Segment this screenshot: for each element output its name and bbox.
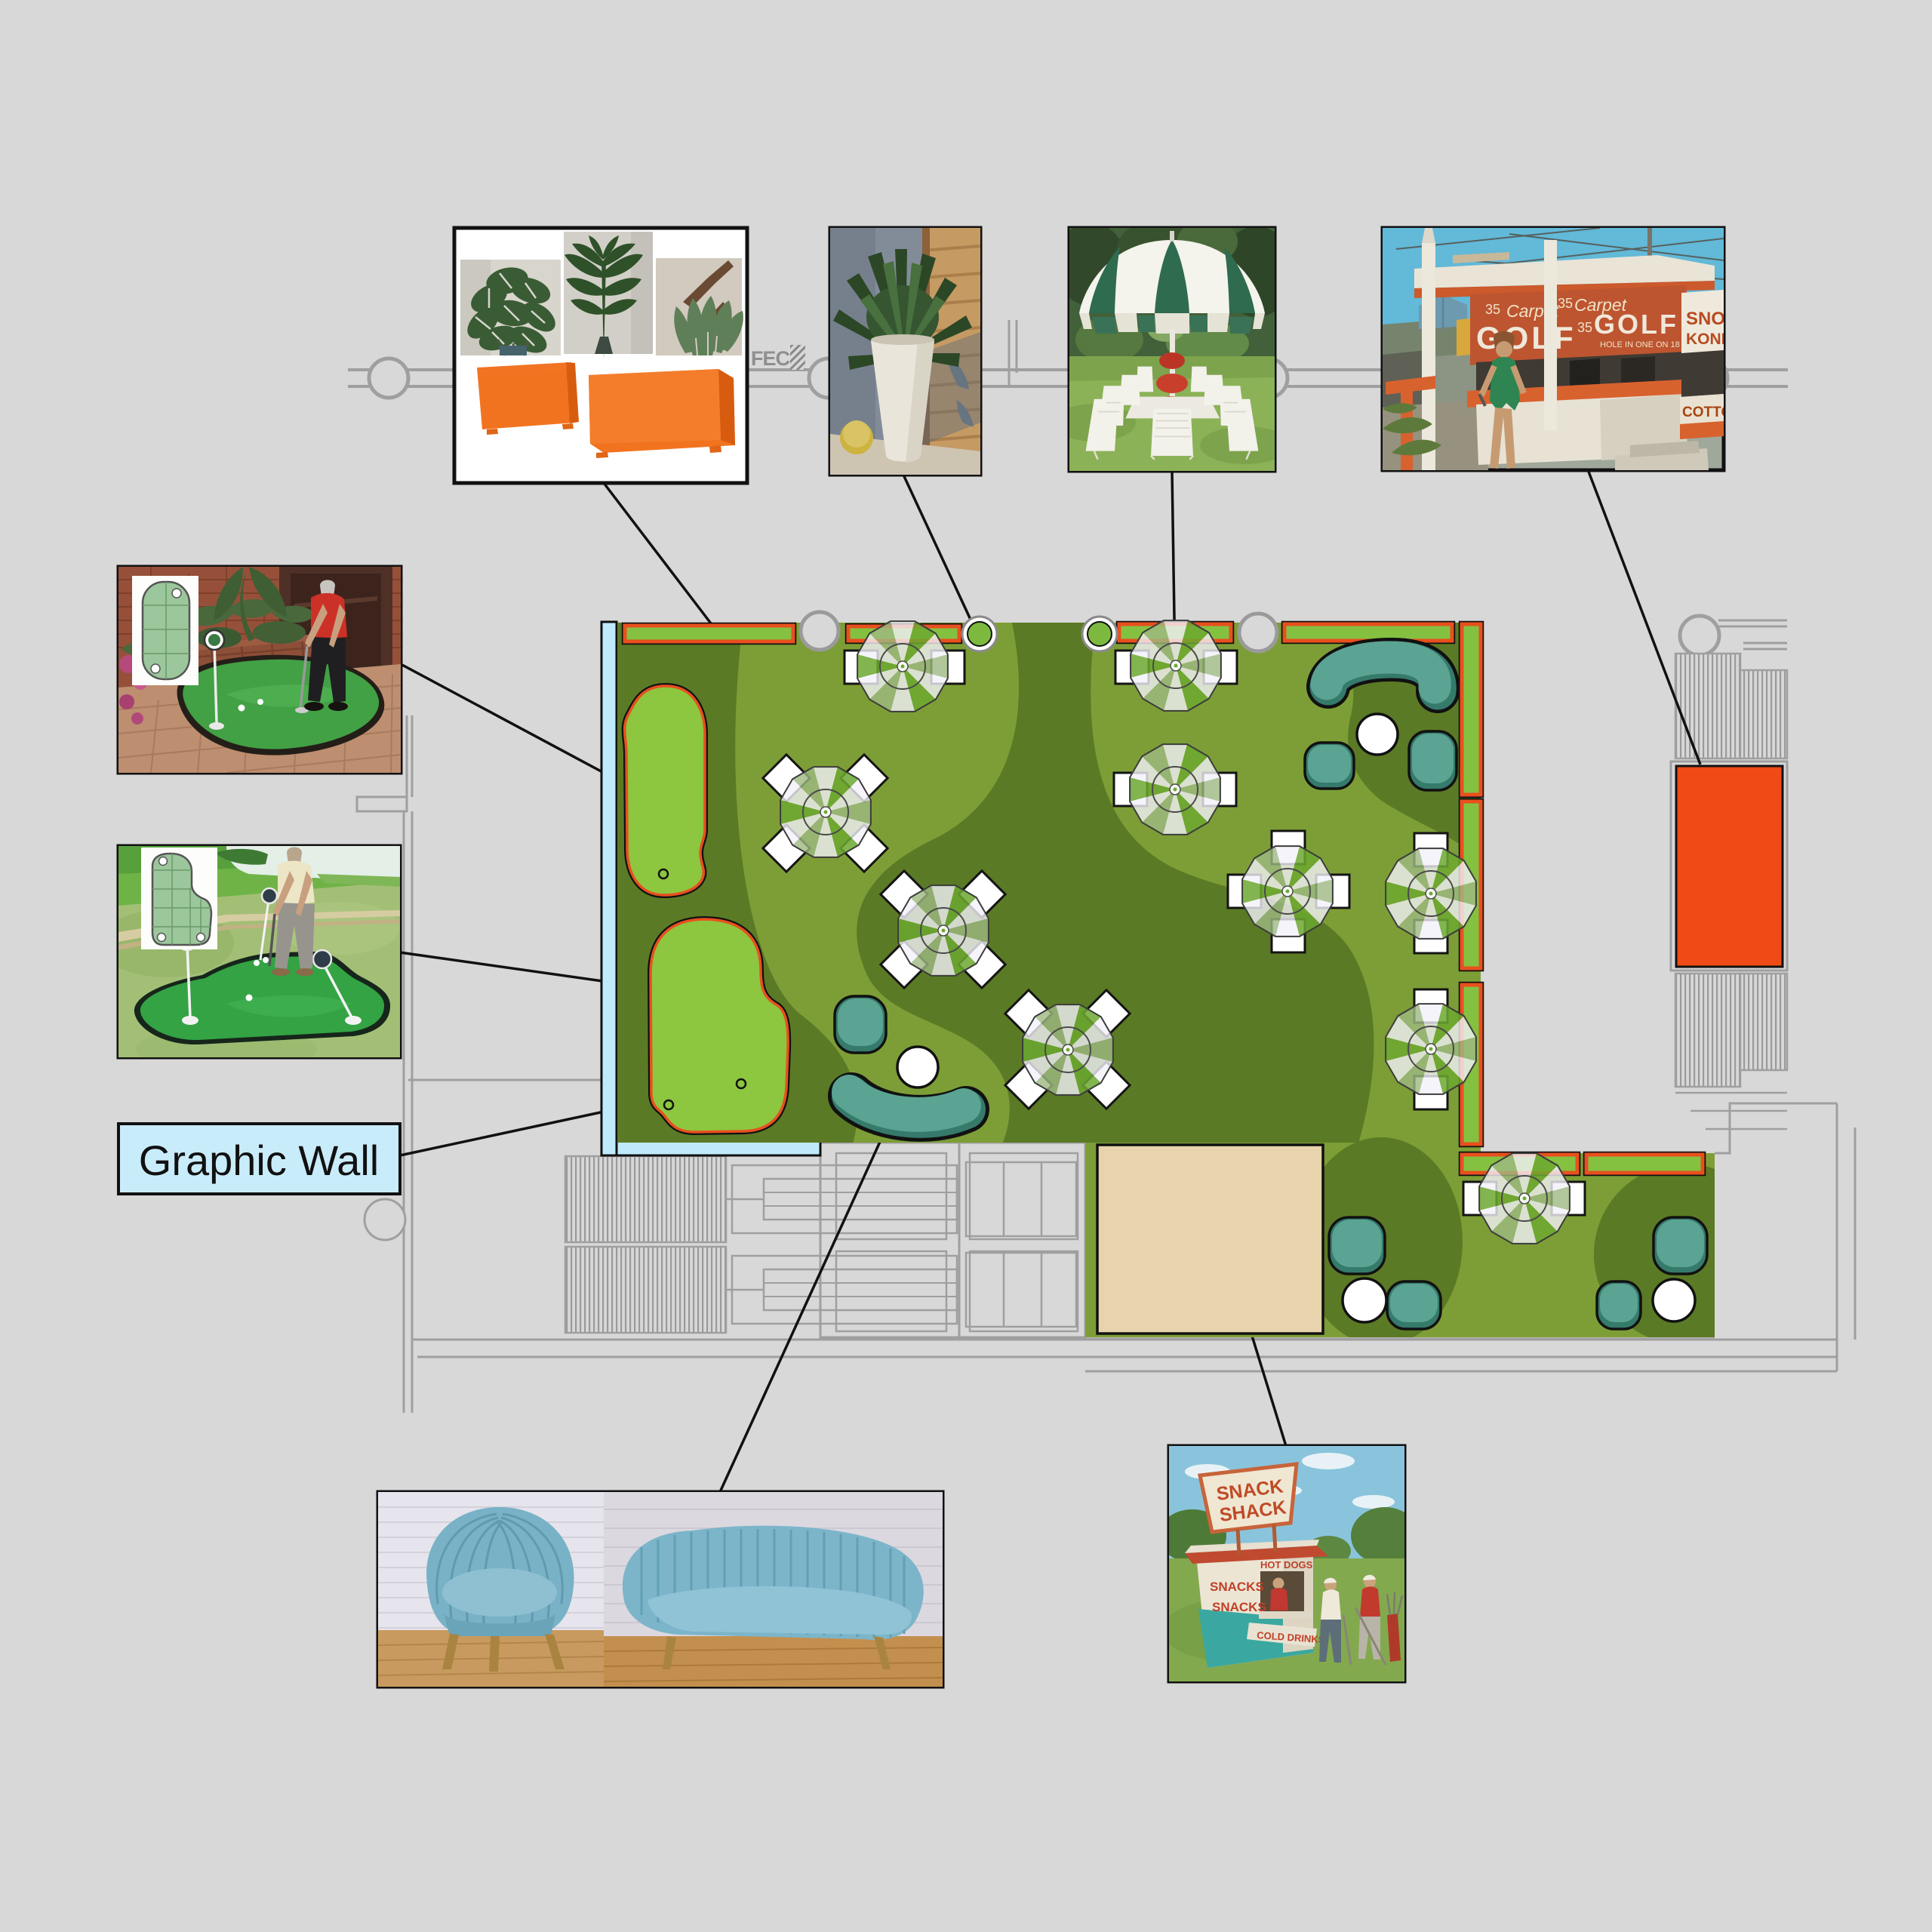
svg-text:GOLF: GOLF bbox=[1476, 320, 1577, 355]
svg-text:35: 35 bbox=[1558, 296, 1573, 311]
svg-text:FEC: FEC bbox=[751, 347, 790, 370]
svg-text:Graphic Wall: Graphic Wall bbox=[139, 1137, 379, 1184]
svg-text:SNACKS: SNACKS bbox=[1212, 1600, 1266, 1614]
svg-text:SNO: SNO bbox=[1686, 309, 1725, 329]
svg-text:35: 35 bbox=[1577, 320, 1592, 335]
svg-text:35: 35 bbox=[1485, 302, 1500, 317]
svg-text:Carpet: Carpet bbox=[1574, 295, 1628, 315]
svg-text:HOT DOGS: HOT DOGS bbox=[1260, 1559, 1313, 1571]
svg-text:SNACKS: SNACKS bbox=[1210, 1580, 1264, 1594]
